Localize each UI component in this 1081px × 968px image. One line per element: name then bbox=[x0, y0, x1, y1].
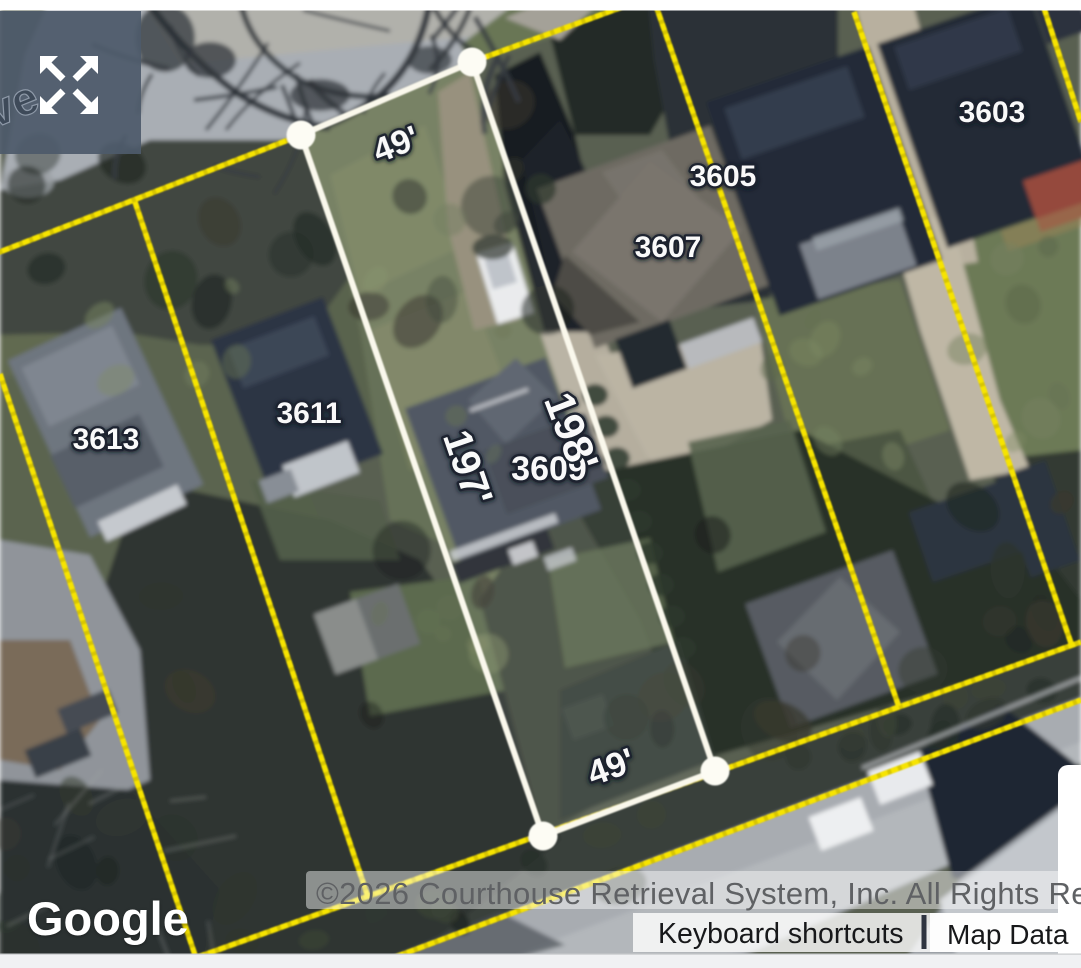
svg-text:3611: 3611 bbox=[276, 397, 341, 430]
svg-text:3603: 3603 bbox=[959, 96, 1026, 129]
svg-text:3607: 3607 bbox=[635, 231, 702, 264]
svg-text:3613: 3613 bbox=[73, 423, 140, 456]
svg-text:3605: 3605 bbox=[690, 160, 757, 193]
